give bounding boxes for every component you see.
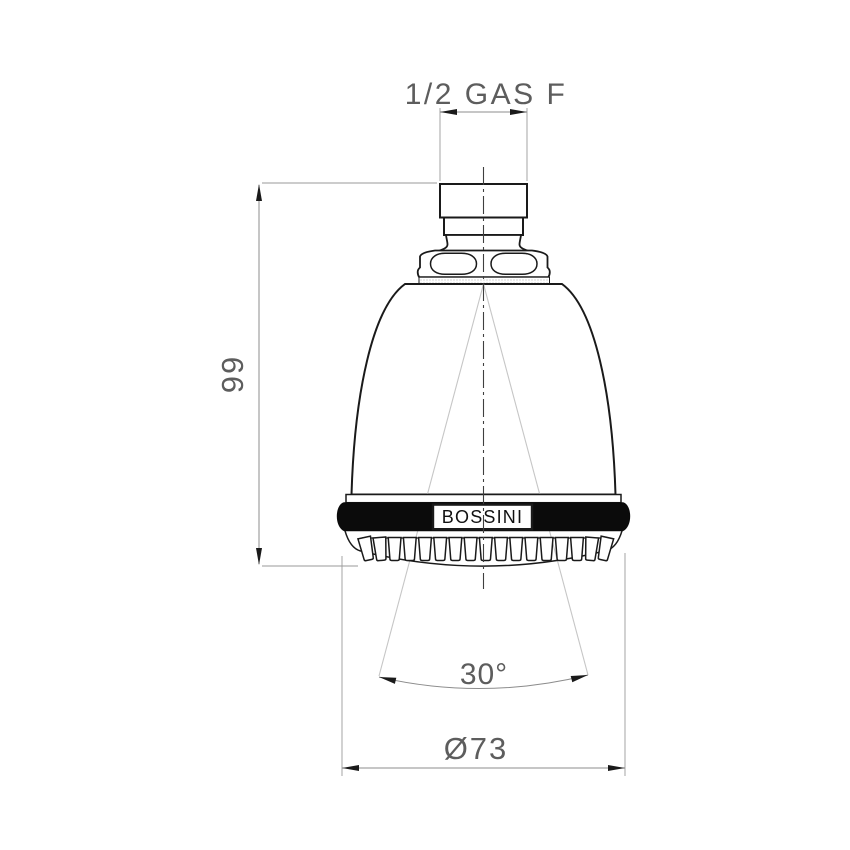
- arc-arrow-left-icon: [379, 677, 396, 684]
- nozzle: [479, 538, 492, 561]
- arc-arrow-right-icon: [571, 675, 588, 682]
- nozzle: [388, 538, 401, 561]
- nozzle: [571, 538, 584, 561]
- nozzle: [525, 538, 538, 561]
- spray-angle-label: 30°: [460, 658, 508, 691]
- thread-dimension: 1/2 GAS F: [405, 78, 568, 181]
- nozzle: [373, 537, 388, 561]
- nozzle: [419, 538, 432, 561]
- nozzle: [555, 538, 568, 561]
- gasket-hatch-band: [419, 277, 550, 284]
- arrow-up-icon: [256, 184, 262, 201]
- arrow-down-icon: [256, 548, 262, 565]
- technical-drawing-page: 1/2 GAS F 99 BOSSINI: [0, 0, 850, 850]
- thread-dimension-label: 1/2 GAS F: [405, 78, 568, 111]
- spray-angle-dimension: 30°: [379, 658, 588, 691]
- nozzle: [540, 538, 553, 561]
- nozzle: [464, 538, 477, 561]
- nozzle: [403, 538, 416, 561]
- showerhead-technical-drawing: 1/2 GAS F 99 BOSSINI: [0, 0, 850, 850]
- height-dimension-label: 99: [215, 355, 250, 393]
- nozzle: [434, 538, 447, 561]
- nozzle-row: [358, 536, 614, 561]
- nozzle: [510, 538, 523, 561]
- nozzle: [449, 538, 462, 561]
- brand-label: BOSSINI: [442, 507, 523, 527]
- nozzle: [495, 538, 508, 561]
- diameter-dimension-label: Ø73: [444, 731, 509, 766]
- nozzle: [584, 537, 599, 561]
- arrow-left-icon: [342, 765, 359, 771]
- arrow-right-icon: [608, 765, 625, 771]
